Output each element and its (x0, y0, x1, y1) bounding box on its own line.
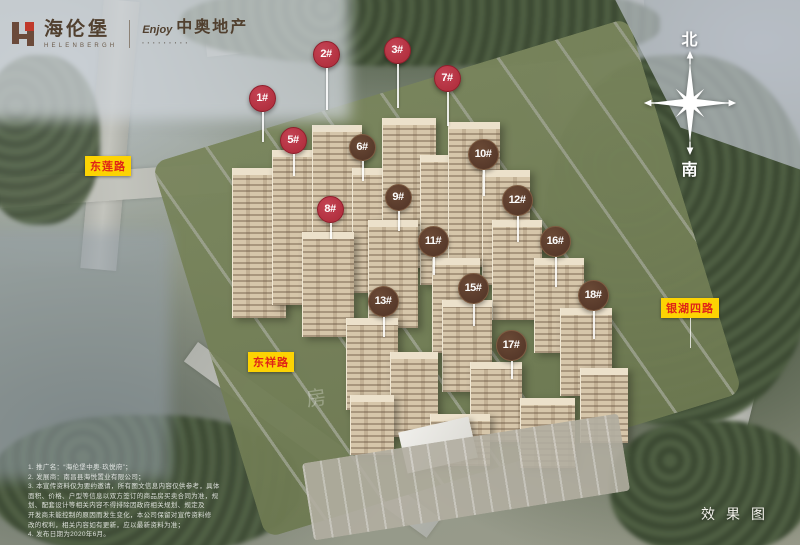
marker-leader-line (398, 211, 400, 231)
brand-header: 海伦堡 HELENBERGH Enjoy 中奥地产 ▪▪▪▪▪▪▪▪▪ (12, 20, 248, 49)
tree-mass-southeast (610, 420, 800, 545)
marker-leader-line (473, 304, 475, 326)
marker-leader-line (593, 311, 595, 339)
brand-name-block: 海伦堡 HELENBERGH (44, 20, 117, 49)
marker-leader-line (397, 64, 399, 108)
marker-leader-line (383, 317, 385, 337)
building-number-label: 18# (578, 280, 609, 311)
building-marker-1: 1# (249, 85, 276, 112)
building-marker-6: 6# (349, 134, 376, 161)
brand-name-en: HELENBERGH (44, 43, 117, 49)
building-marker-10: 10# (468, 139, 499, 170)
compass-south-label: 南 (638, 156, 742, 180)
disclaimer-line: 面积、价格、户型等信息以双方签订的商品房买卖合同为准，规 (28, 492, 220, 502)
disclaimer-text: 1. 推广名：“海伦堡中奥·玖悦府”；2. 发展商：南昌县海悦置业有限公司；3.… (28, 463, 220, 540)
building-number-label: 8# (317, 196, 344, 223)
marker-leader-line (511, 361, 513, 379)
building-marker-11: 11# (418, 226, 449, 257)
building-marker-13: 13# (368, 286, 399, 317)
brand-name-cn: 海伦堡 (44, 20, 117, 39)
compass: 北 南 (638, 26, 742, 180)
building-number-label: 12# (502, 185, 533, 216)
watermark: 房 (304, 381, 328, 413)
marker-leader-line (330, 223, 332, 239)
marker-leader-line (293, 154, 295, 176)
marker-leader-line (517, 216, 519, 242)
brand-divider (129, 20, 130, 48)
road-label: 东祥路 (248, 352, 294, 372)
disclaimer-line: 划、配套设计等相关内容不得排除因政府相关规划、规定及 (28, 501, 220, 511)
marker-leader-line (362, 161, 364, 181)
building-marker-7: 7# (434, 65, 461, 92)
building-marker-2: 2# (313, 41, 340, 68)
partner-name: 中奥地产 (176, 20, 248, 36)
marker-leader-line (483, 170, 485, 196)
disclaimer-line: 3. 本宣传资料仅为要约邀请，所有图文信息内容仅供参考，具体 (28, 482, 220, 492)
aerial-render-poster: 海伦堡 HELENBERGH Enjoy 中奥地产 ▪▪▪▪▪▪▪▪▪ 北 (0, 0, 800, 545)
helenbergh-logo-icon (12, 22, 34, 46)
compass-rose-icon (638, 51, 742, 155)
partner-tagline: ▪▪▪▪▪▪▪▪▪ (142, 41, 248, 45)
building-number-label: 13# (368, 286, 399, 317)
road-label: 银湖四路 (661, 298, 719, 318)
building-marker-15: 15# (458, 273, 489, 304)
fog-topleft (0, 0, 350, 120)
partner-brand-block: Enjoy 中奥地产 ▪▪▪▪▪▪▪▪▪ (142, 20, 248, 45)
building-number-label: 16# (540, 226, 571, 257)
building-number-label: 15# (458, 273, 489, 304)
building-marker-3: 3# (384, 37, 411, 64)
building-number-label: 11# (418, 226, 449, 257)
building-number-label: 17# (496, 330, 527, 361)
road-label: 东莲路 (85, 156, 131, 176)
building-marker-17: 17# (496, 330, 527, 361)
compass-north-label: 北 (638, 26, 742, 50)
building-marker-8: 8# (317, 196, 344, 223)
building-number-label: 9# (385, 184, 412, 211)
disclaimer-line: 开发商未能控制的原因而发生变化，本公司保留对宣传资料修 (28, 511, 220, 521)
disclaimer-line: 1. 推广名：“海伦堡中奥·玖悦府”； (28, 463, 220, 473)
partner-enjoy-script: Enjoy (142, 25, 172, 36)
render-type-label: 效果图 (701, 504, 776, 524)
building-marker-16: 16# (540, 226, 571, 257)
building (350, 395, 394, 455)
fog-west (0, 230, 170, 480)
building-number-label: 7# (434, 65, 461, 92)
disclaimer-line: 2. 发展商：南昌县海悦置业有限公司； (28, 473, 220, 483)
marker-leader-line (262, 112, 264, 142)
marker-leader-line (433, 257, 435, 275)
building-number-label: 3# (384, 37, 411, 64)
building-marker-18: 18# (578, 280, 609, 311)
building-number-label: 1# (249, 85, 276, 112)
building-number-label: 2# (313, 41, 340, 68)
disclaimer-line: 4. 发布日期为2020年6月。 (28, 530, 220, 540)
marker-leader-line (326, 68, 328, 110)
marker-leader-line (555, 257, 557, 287)
disclaimer-line: 改的权利，相关内容如有更新，应以最新资料为准； (28, 521, 220, 531)
building-number-label: 6# (349, 134, 376, 161)
building-marker-9: 9# (385, 184, 412, 211)
building-marker-5: 5# (280, 127, 307, 154)
road-label-tick (690, 318, 691, 348)
building-marker-12: 12# (502, 185, 533, 216)
building-number-label: 5# (280, 127, 307, 154)
marker-leader-line (447, 92, 449, 126)
building-number-label: 10# (468, 139, 499, 170)
